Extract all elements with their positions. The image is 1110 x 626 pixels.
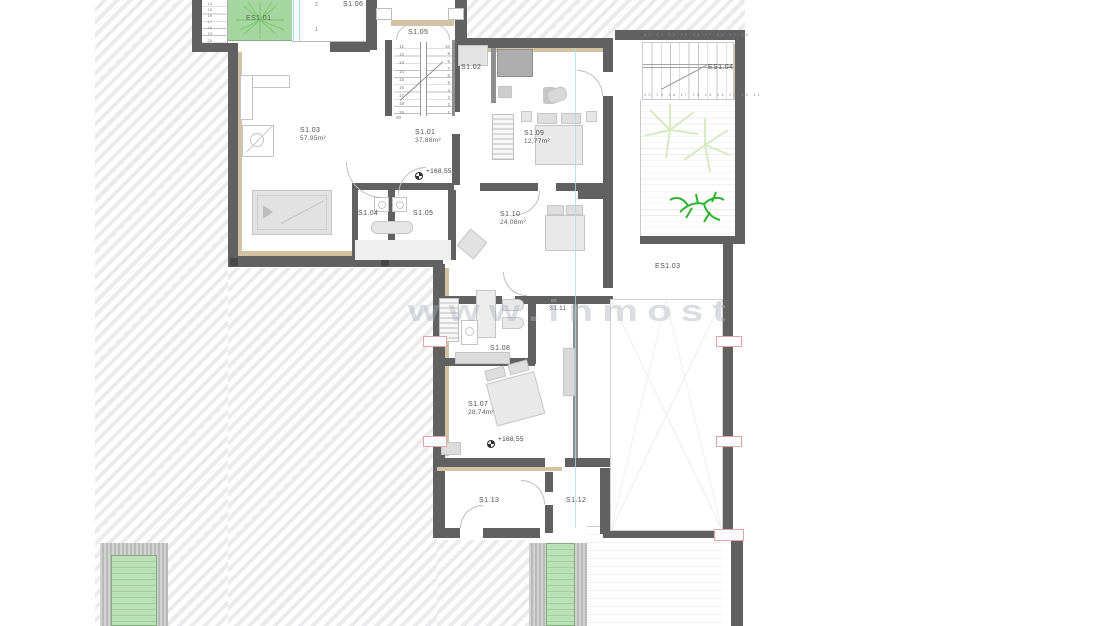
section-line-vertical [575, 48, 576, 528]
wall-s107-s113-a [437, 458, 545, 467]
wall-tie-top-b [448, 8, 464, 20]
wall-tie-top-a [376, 8, 392, 20]
wall-y183-b [556, 183, 613, 191]
planter-left [111, 555, 157, 626]
label-s101: S1.01 [415, 129, 441, 137]
kitchen-item [498, 86, 512, 98]
duct-line-a [293, 0, 294, 41]
stair-s105-numbers-right: 10 9 8 7 6 5 4 3 2 1 [442, 43, 450, 116]
es101-planter: ES1.01 [228, 0, 292, 41]
wall-right-lower [723, 244, 733, 540]
wall-right-edge-bottom [731, 540, 743, 626]
wall-tie-left-a [423, 336, 447, 347]
dim-text-a: 2 [315, 2, 318, 8]
label-s107: S1.07 [468, 401, 494, 409]
hatch-bottom-left [228, 268, 437, 626]
es101-stair-numbers: 14 15 16 17 18 19 20 [204, 1, 212, 44]
es104-numbers-bottom: 20 19 18 17 16 15 14 13 12 11 [644, 92, 736, 97]
wall-s112-right [600, 468, 610, 534]
door-arc-s113 [460, 505, 483, 528]
wall-left [228, 52, 238, 264]
wall-s107-s113-b [565, 458, 610, 467]
wardrobe-s109 [492, 114, 514, 160]
label-s106: S1.06 [343, 1, 363, 9]
label-s103: S1.03 [300, 127, 326, 135]
hatch-left-band [95, 0, 228, 626]
es103-terrace-diagonals [611, 300, 722, 530]
label-s102: S1.02 [461, 64, 481, 72]
level-lower: +168,55 [498, 436, 524, 443]
label-block-s101: S1.01 37,86m² [415, 129, 441, 145]
label-s108: S1.08 [490, 345, 510, 353]
wardrobe-s102 [458, 45, 488, 66]
chair-s110 [457, 229, 488, 260]
planter-border-b [575, 543, 587, 626]
wall-topleft-h [192, 43, 238, 52]
wall-s113-s112-b [545, 505, 553, 533]
lower-terrace [587, 526, 723, 626]
wall-garden-bottom [640, 236, 740, 244]
wall-y183-a [480, 183, 538, 191]
dim-text-b: 1 [315, 27, 318, 33]
label-es104: ES1.04 [708, 64, 733, 72]
wardrobe-s107-right [563, 348, 575, 396]
column-a [230, 258, 238, 266]
bed-s110 [545, 215, 585, 251]
es101-label: ES1.01 [246, 15, 271, 23]
wall-s113-bottom-b [483, 528, 540, 538]
duct-line-b [299, 0, 300, 41]
label-s110: S1.10 [500, 211, 526, 219]
floorplan-canvas: 14 15 16 17 18 19 20 ES1.01 2 1 [0, 0, 1110, 626]
shower-floor [355, 240, 451, 260]
stair-s105-number-last: 20 [393, 115, 401, 120]
wall-right-upper [735, 40, 745, 244]
label-block-s103: S1.03 57,95m² [300, 127, 326, 143]
label-s104: S1.04 [358, 210, 378, 218]
wall-tie-right-b [716, 436, 742, 447]
planter-border-a [529, 543, 546, 626]
stair-s105-wall-left [385, 40, 392, 116]
palm-graphic-es104 [640, 100, 735, 236]
shower-s102 [497, 49, 533, 77]
wall-s102-bath [491, 48, 496, 103]
area-s107: 28,74m² [468, 409, 494, 417]
stair-s105-numbers-left: 11 12 13 14 15 16 17 18 19 [396, 43, 404, 117]
pillow-s109-b [561, 113, 581, 124]
lining-s113-top [437, 467, 562, 471]
label-s105-bath: S1.05 [413, 210, 433, 218]
pillow-s110-a [547, 205, 564, 215]
level-marker-upper [415, 172, 423, 180]
wall-top-v-b [455, 0, 467, 44]
pillow-s109-a [537, 113, 557, 124]
wall-s102-divider-b [452, 134, 460, 185]
wall-corridor-stub [578, 190, 605, 199]
door-arc-s109 [577, 70, 603, 96]
watermark: www.inmost [408, 293, 735, 329]
nightstand-s109-a [521, 111, 532, 122]
area-s101: 37,86m² [415, 137, 441, 145]
door-arc-hall [398, 167, 426, 195]
sink-s105b-basin [396, 201, 404, 209]
door-arc-s112 [521, 480, 545, 504]
media-unit [252, 190, 332, 235]
wall-s109-right-a [603, 38, 613, 72]
wall-top-h-a [330, 42, 370, 52]
area-s109: 12,77m² [524, 138, 550, 146]
nightstand-s109-b [586, 111, 597, 122]
hatch-below-s113 [437, 540, 529, 626]
label-block-s109: S1.09 12,77m² [524, 130, 550, 146]
level-upper: +168,55 [426, 168, 452, 175]
label-s109: S1.09 [524, 130, 550, 138]
wall-tie-bottom-right [714, 529, 744, 541]
wall-s113-bottom-a [433, 528, 460, 538]
level-marker-lower [487, 440, 495, 448]
wall-tie-left-b [423, 436, 447, 447]
label-s112: S1.12 [566, 497, 586, 505]
label-es103: ES1.03 [655, 263, 680, 271]
play-icon [263, 205, 273, 219]
label-block-s110: S1.10 24,08m² [500, 211, 526, 227]
label-s113: S1.13 [479, 497, 499, 505]
bed-s107 [480, 356, 548, 430]
wardrobe-s107-top [455, 352, 510, 364]
stair-s105-wall-right [452, 40, 455, 116]
es103-terrace [610, 299, 723, 531]
label-s105-stair: S1.05 [408, 29, 428, 37]
planter-center [546, 543, 575, 626]
wall-s113-s112-a [545, 472, 553, 492]
es104-numbers-top: 02 03 04 05 06 07 08 09 10 [644, 32, 736, 37]
bath-bench [371, 221, 413, 234]
wall-tie-right-a [716, 336, 742, 347]
sink-s104-basin [378, 201, 386, 209]
label-block-s107: S1.07 28,74m² [468, 401, 494, 417]
area-s110: 24,08m² [500, 219, 526, 227]
area-s103: 57,95m² [300, 135, 326, 143]
sofa-vertical [240, 75, 253, 120]
